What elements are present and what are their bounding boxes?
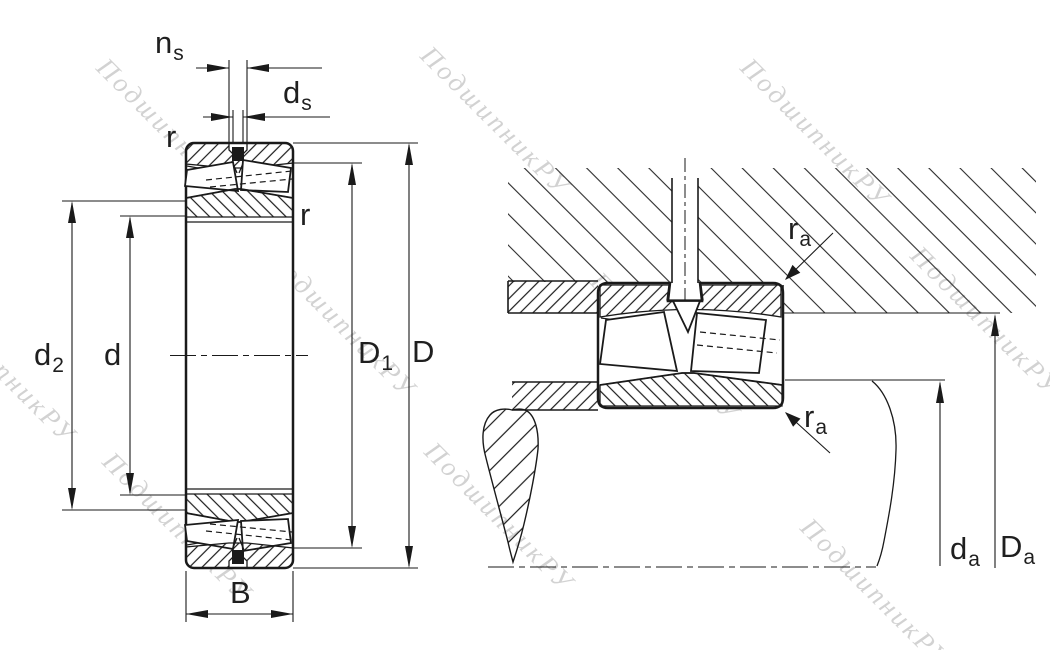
- label-D: D: [412, 335, 434, 369]
- label-r-right: r: [300, 200, 310, 231]
- right-view-mounting-section: [483, 158, 1036, 568]
- roller: [600, 312, 677, 371]
- shaft-break-line: [872, 381, 896, 566]
- label-D1: D1: [358, 336, 393, 374]
- oil-hole-top: [232, 147, 244, 161]
- label-ra-top: ra: [788, 214, 811, 248]
- oil-hole-bottom: [232, 550, 244, 564]
- housing-shoulder-section: [508, 281, 598, 313]
- label-ds: ds: [283, 76, 312, 114]
- label-ns: ns: [155, 26, 184, 64]
- shaft-shoulder-section: [512, 382, 598, 410]
- label-d2: d2: [34, 338, 64, 376]
- shaft-shoulder-breakout: [483, 409, 538, 562]
- drawing-canvas: ПодшипникРУ ПодшипникРУ ПодшипникРУ Подш…: [0, 0, 1050, 650]
- label-Da: Da: [1000, 530, 1035, 568]
- technical-drawing-svg: [0, 0, 1050, 650]
- label-ra-bottom: ra: [804, 402, 827, 436]
- label-r-top: r: [166, 122, 176, 153]
- label-B: B: [230, 576, 251, 610]
- roller: [691, 313, 766, 373]
- label-da: da: [950, 532, 980, 570]
- label-d: d: [104, 338, 121, 372]
